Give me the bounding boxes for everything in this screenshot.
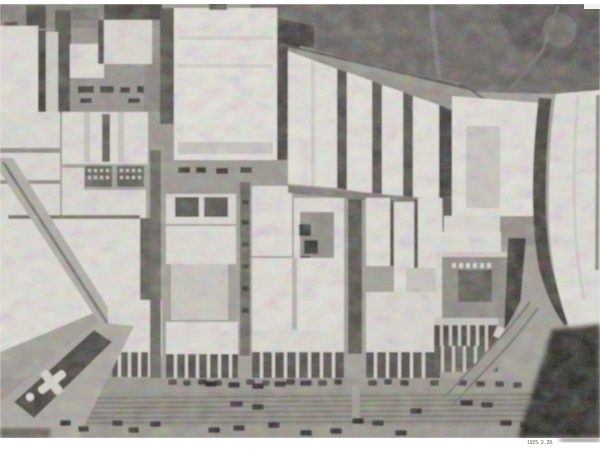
svg-text:1925. 2. 28.: 1925. 2. 28.	[527, 440, 553, 446]
